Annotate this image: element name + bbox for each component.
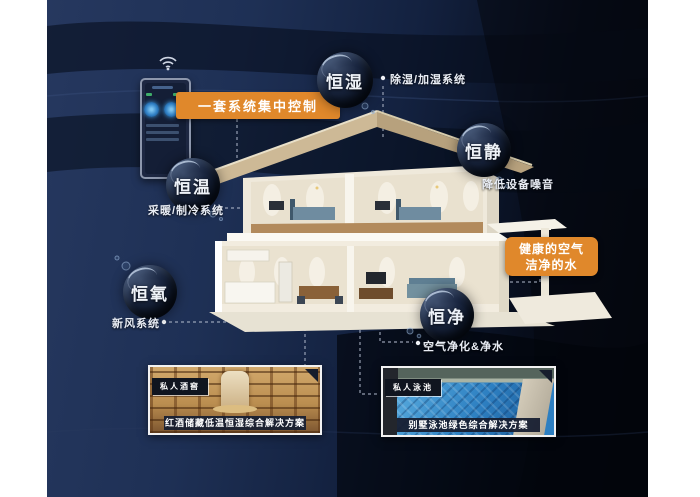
callout-dehumidify: 除湿/加湿系统 [390, 71, 466, 87]
bubble-hengwen-label: 恒温 [174, 173, 212, 198]
pool-card: 私人泳池 别墅泳池绿色综合解决方案 [381, 366, 556, 437]
wine-cellar-tag: 私人酒窖 [152, 378, 208, 395]
panel-menu-bars [146, 124, 179, 141]
bubble-hengshi-label: 恒湿 [326, 68, 364, 93]
panel-title-bar [152, 86, 173, 89]
wine-cellar-table [213, 405, 257, 413]
dial-icon [144, 102, 159, 117]
wine-cellar-caption: 红酒储藏低温恒湿综合解决方案 [164, 416, 307, 430]
callout-fresh-air: 新风系统 [112, 315, 160, 331]
bubble-hengshi: 恒湿 [317, 52, 373, 108]
callout-purification: 空气净化&净水 [423, 338, 504, 354]
poster-page: 一套系统集中控制 恒湿 除湿/加湿系统 恒静 降低设备噪音 恒温 采暖/制冷系统… [0, 0, 700, 497]
wine-cellar-arch [221, 371, 248, 408]
pool-caption: 别墅泳池绿色综合解决方案 [397, 418, 541, 432]
wine-cellar-card: 私人酒窖 红酒储藏低温恒湿综合解决方案 [148, 365, 322, 435]
pool-tag: 私人泳池 [385, 379, 441, 396]
panel-status-lights [146, 93, 179, 97]
central-control-label: 一套系统集中控制 [176, 92, 340, 119]
healthy-air-water-box: 健康的空气 洁净的水 [505, 237, 598, 276]
pool-photo: 私人泳池 别墅泳池绿色综合解决方案 [383, 368, 554, 435]
bubble-hengjin: 恒净 [420, 288, 474, 342]
callout-noise: 降低设备噪音 [482, 176, 554, 192]
bubble-hengjing-label: 恒静 [465, 138, 503, 163]
bubble-hengjing: 恒静 [457, 123, 511, 177]
panel-dials [144, 102, 179, 117]
clean-water-line: 洁净的水 [525, 257, 577, 273]
corner-fold-icon [539, 370, 552, 383]
bubble-hengyang: 恒氧 [123, 265, 177, 319]
central-control-text: 一套系统集中控制 [198, 96, 318, 115]
bubble-hengjin-label: 恒净 [428, 303, 466, 328]
wifi-icon [157, 53, 179, 71]
callout-heating-cooling: 采暖/制冷系统 [148, 202, 224, 218]
infographic-canvas: 一套系统集中控制 恒湿 除湿/加湿系统 恒静 降低设备噪音 恒温 采暖/制冷系统… [47, 0, 648, 497]
bubble-hengyang-label: 恒氧 [131, 280, 169, 305]
corner-fold-icon [305, 369, 318, 382]
healthy-air-line: 健康的空气 [519, 241, 584, 257]
wine-cellar-photo: 私人酒窖 红酒储藏低温恒湿综合解决方案 [150, 367, 320, 433]
